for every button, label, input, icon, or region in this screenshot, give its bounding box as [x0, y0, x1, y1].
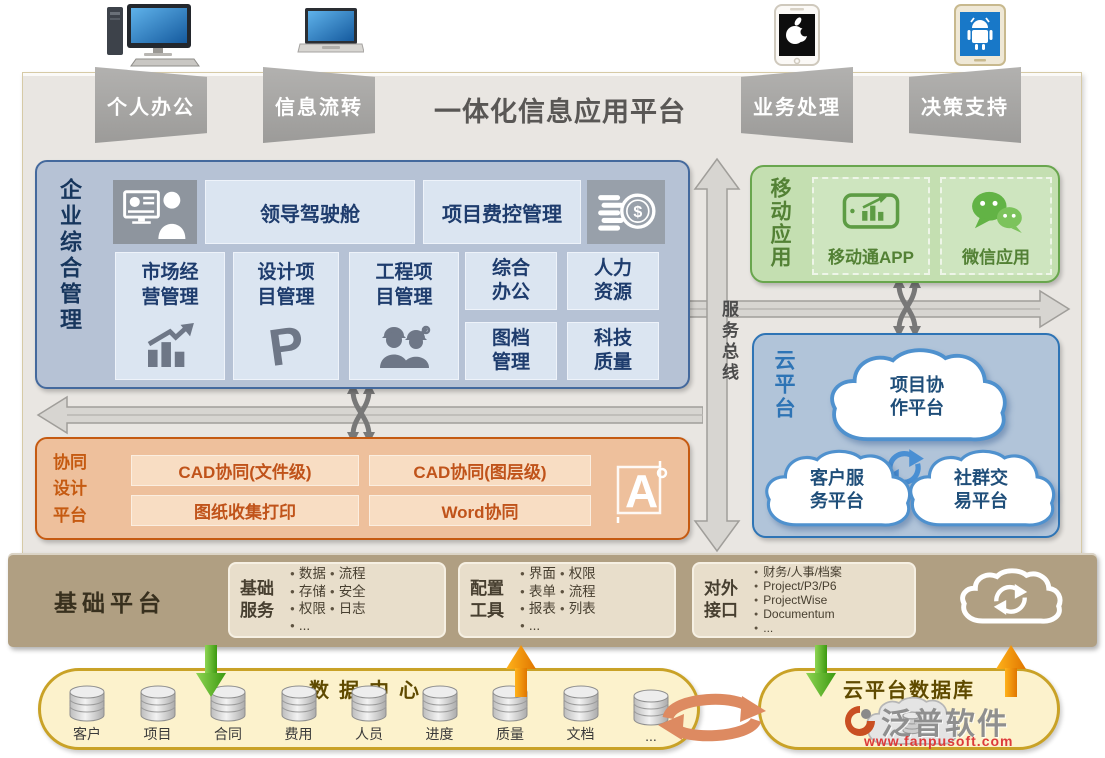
- page-title: 一体化信息应用平台: [395, 90, 725, 129]
- bullet-list: 财务/人事/档案 Project/P3/P6 ProjectWise Docum…: [754, 565, 842, 636]
- mobile-app-cell: 移动通APP: [812, 177, 930, 275]
- database-item: 文档: [561, 685, 601, 744]
- module-label: 项目费控管理: [442, 198, 562, 227]
- database-label: 文档: [567, 724, 595, 744]
- svg-text:$: $: [633, 203, 642, 221]
- bullet-item: ...: [290, 617, 326, 634]
- module-general-office: 综合办公: [465, 252, 557, 310]
- design-platform-label: 协同设计平台: [51, 450, 89, 529]
- database-item: 项目: [138, 685, 178, 744]
- cloud-label: 客户服务平台: [807, 467, 867, 514]
- p-project-icon: P: [259, 310, 313, 379]
- bullet-list: 权限 流程 列表: [560, 565, 596, 634]
- group-name: 配置工具: [470, 578, 510, 622]
- tab-decision-support: 决策支持: [909, 67, 1021, 143]
- module-label: 人力资源: [591, 257, 635, 305]
- group-external-interfaces: 对外接口 财务/人事/档案 Project/P3/P6 ProjectWise …: [692, 562, 916, 638]
- tab-label: 业务处理: [753, 91, 841, 120]
- up-arrow-orange: [996, 645, 1026, 697]
- bullet-item: 权限: [290, 600, 326, 617]
- bullet-item: Project/P3/P6: [754, 579, 842, 593]
- module-label: 设计项目管理: [255, 261, 317, 310]
- up-arrow-orange: [506, 645, 536, 697]
- module-design-project-management: 设计项目管理 P: [233, 252, 339, 380]
- down-arrow-green: [196, 645, 226, 697]
- cell-label: CAD协同(文件级): [178, 458, 311, 483]
- bullet-list: 界面 表单 报表 ...: [520, 565, 556, 634]
- cloud-customer-service: 客户服务平台: [760, 447, 914, 533]
- cloud-platform-label: 云平台: [768, 349, 798, 421]
- tab-label: 个人办公: [107, 91, 195, 120]
- base-platform-band: 基础平台 基础服务 数据 存储 权限 ... 流程 安全 日志 配置工具: [8, 553, 1097, 647]
- watermark-url: www.fanpusoft.com: [864, 733, 1013, 749]
- cell-cad-file-level: CAD协同(文件级): [131, 455, 359, 486]
- database-cylinder-icon: [561, 685, 601, 723]
- cloud-label: 项目协作平台: [887, 374, 947, 421]
- service-bus-label: 服务总线: [693, 300, 741, 384]
- wechat-cell: 微信应用: [940, 177, 1052, 275]
- collaborative-design-box: 协同设计平台 CAD协同(文件级) CAD协同(图层级) 图纸收集打印 Word…: [35, 437, 690, 540]
- database-label: 人员: [355, 724, 383, 744]
- module-human-resources: 人力资源: [567, 252, 659, 310]
- group-name: 对外接口: [704, 578, 744, 622]
- bar-chart-icon: [144, 310, 196, 379]
- mobile-application-box: 移动应用 移动通APP: [750, 165, 1060, 283]
- bullet-item: ...: [520, 617, 556, 634]
- database-label: 进度: [426, 724, 454, 744]
- module-engineering-project-management: 工程项目管理: [349, 252, 459, 380]
- module-leader-cockpit: 领导驾驶舱: [205, 180, 415, 244]
- bullet-item: 列表: [560, 600, 596, 617]
- svg-text:P: P: [265, 320, 307, 370]
- bullet-item: ...: [754, 621, 842, 635]
- module-tech-quality: 科技质量: [567, 322, 659, 380]
- enterprise-management-box: 企业综合管理 领导驾驶舱 项目费控管理 $ 市场: [35, 160, 690, 389]
- bullet-item: 流程: [330, 565, 366, 582]
- data-center: 数据中心 客户 项目 合同 费用 人员 进度 质量 文档 ...: [38, 668, 700, 750]
- base-platform-label: 基础平台: [54, 584, 166, 618]
- tab-label: 决策支持: [921, 91, 1009, 120]
- mobile-label: 移动应用: [764, 177, 794, 269]
- bullet-item: ProjectWise: [754, 593, 842, 607]
- group-config-tools: 配置工具 界面 表单 报表 ... 权限 流程 列表: [458, 562, 676, 638]
- cad-icon: A: [612, 453, 670, 525]
- wechat-label: 微信应用: [962, 243, 1030, 268]
- database-item: 进度: [420, 685, 460, 744]
- construction-workers-icon: [376, 310, 432, 379]
- bullet-item: 表单: [520, 583, 556, 600]
- database-item: 客户: [67, 685, 107, 744]
- database-label: 合同: [214, 724, 242, 744]
- bullet-item: 权限: [560, 565, 596, 582]
- cell-label: 图纸收集打印: [194, 498, 296, 523]
- laptop-icon: [296, 8, 364, 60]
- data-exchange-arrows: [656, 684, 768, 746]
- bullet-item: 存储: [290, 583, 326, 600]
- bullet-item: 界面: [520, 565, 556, 582]
- down-arrow-green: [806, 645, 836, 697]
- module-label: 科技质量: [591, 327, 635, 375]
- database-cylinder-icon: [67, 685, 107, 723]
- tab-business-process: 业务处理: [741, 67, 853, 143]
- database-item: 费用: [279, 685, 319, 744]
- bullet-list: 数据 存储 权限 ...: [290, 565, 326, 634]
- tab-information-flow: 信息流转: [263, 67, 375, 143]
- exchange-arrows-icon: [888, 276, 926, 338]
- bullet-item: 报表: [520, 600, 556, 617]
- database-cylinder-icon: [279, 685, 319, 723]
- database-item: 人员: [349, 685, 389, 744]
- bullet-item: 日志: [330, 600, 366, 617]
- desktop-computer-icon: [106, 4, 200, 68]
- database-label: 费用: [285, 724, 313, 744]
- database-cylinder-icon: [420, 685, 460, 723]
- module-label: 工程项目管理: [373, 261, 435, 310]
- module-label: 领导驾驶舱: [260, 198, 360, 227]
- iphone-apple-icon: [774, 4, 820, 66]
- mobile-app-chart-icon: [840, 179, 902, 243]
- database-label: 质量: [496, 724, 524, 744]
- cloud-community-trading: 社群交易平台: [904, 447, 1058, 533]
- architecture-diagram: 个人办公 信息流转 一体化信息应用平台 业务处理 决策支持 服务总线 企业综合管…: [0, 0, 1105, 758]
- leader-dashboard-icon: [113, 180, 197, 244]
- bullet-item: 流程: [560, 583, 596, 600]
- cell-label: Word协同: [441, 498, 518, 523]
- cell-word-collaboration: Word协同: [369, 495, 591, 526]
- bullet-item: 安全: [330, 583, 366, 600]
- bullet-item: Documentum: [754, 607, 842, 621]
- database-cylinder-icon: [138, 685, 178, 723]
- group-name: 基础服务: [240, 578, 280, 622]
- database-label: 项目: [144, 724, 172, 744]
- database-cylinder-icon: [349, 685, 389, 723]
- bullet-list: 流程 安全 日志: [330, 565, 366, 634]
- cell-cad-layer-level: CAD协同(图层级): [369, 455, 591, 486]
- money-coins-icon: $: [587, 180, 665, 244]
- cloud-sync-icon: [958, 561, 1063, 639]
- svg-text:A: A: [625, 465, 658, 517]
- cloud-platform-box: 云平台 项目协作平台 客户服务平台 社群交易平台: [752, 333, 1060, 538]
- mobile-app-label: 移动通APP: [828, 243, 914, 268]
- module-drawing-archive: 图档管理: [465, 322, 557, 380]
- enterprise-label: 企业综合管理: [53, 178, 85, 334]
- database-label: 客户: [73, 724, 101, 744]
- cell-label: CAD协同(图层级): [413, 458, 546, 483]
- cell-drawing-collect-print: 图纸收集打印: [131, 495, 359, 526]
- android-phone-icon: [954, 4, 1006, 66]
- module-label: 综合办公: [489, 257, 533, 305]
- group-base-services: 基础服务 数据 存储 权限 ... 流程 安全 日志: [228, 562, 446, 638]
- exchange-arrows-icon: [342, 382, 380, 444]
- bullet-item: 财务/人事/档案: [754, 565, 842, 579]
- module-project-cost-control: 项目费控管理: [423, 180, 581, 244]
- module-label: 图档管理: [489, 327, 533, 375]
- tab-label: 信息流转: [275, 91, 363, 120]
- cloud-project-collaboration: 项目协作平台: [822, 345, 1012, 449]
- wechat-icon: [968, 179, 1024, 243]
- bullet-item: 数据: [290, 565, 326, 582]
- module-label: 市场经营管理: [139, 261, 201, 310]
- right-data-flow-arrow: [688, 287, 1072, 331]
- module-market-management: 市场经营管理: [115, 252, 225, 380]
- tab-personal-office: 个人办公: [95, 67, 207, 143]
- cloud-label: 社群交易平台: [951, 467, 1011, 514]
- database-row: 客户 项目 合同 费用 人员 进度 质量 文档 ...: [67, 693, 671, 744]
